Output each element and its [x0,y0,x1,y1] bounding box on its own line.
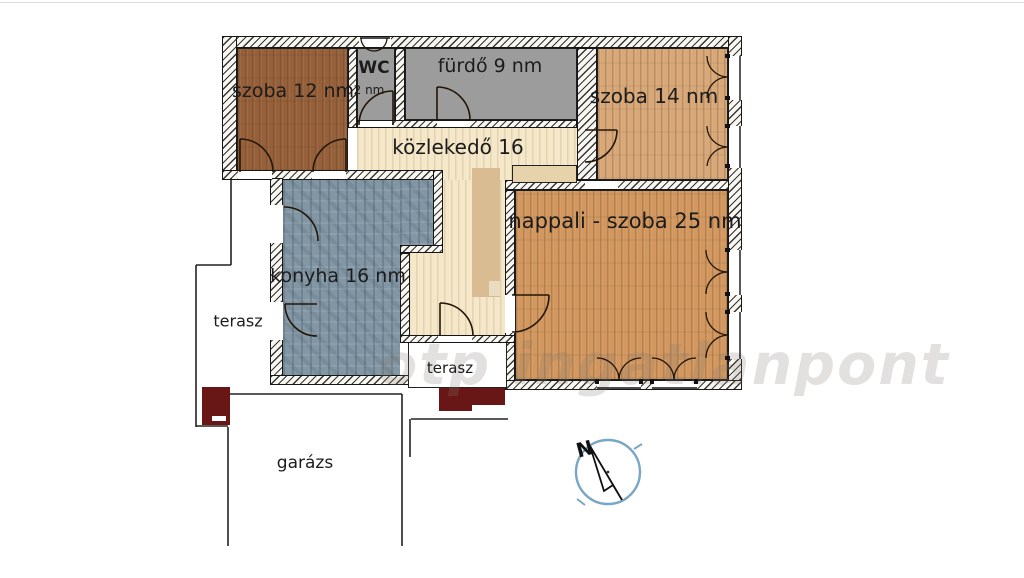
room-label-terasz-middle: terasz [427,359,473,377]
symbols-layer: N [0,0,1024,578]
room-label-nappali: nappali - szoba 25 nm [508,209,741,233]
room-label-garazs: garázs [277,453,333,473]
floor-plan-canvas: otp ingatlanpont [0,0,1024,578]
room-label-konyha: konyha 16 nm [270,265,406,287]
room-label-wc: WC [358,58,389,78]
room-label-kozlekedo: közlekedő 16 [392,135,523,159]
room-label-terasz-left: terasz [213,312,262,331]
room-label-szoba14: szoba 14 nm [590,84,718,108]
compass-north-label: N [573,435,595,463]
room-label-szoba12: szoba 12 nm [232,80,354,102]
room-label-furdo: fürdő 9 nm [438,55,543,77]
room-label-wc-area: 2 nm [354,83,385,97]
compass-icon: N [573,435,642,505]
